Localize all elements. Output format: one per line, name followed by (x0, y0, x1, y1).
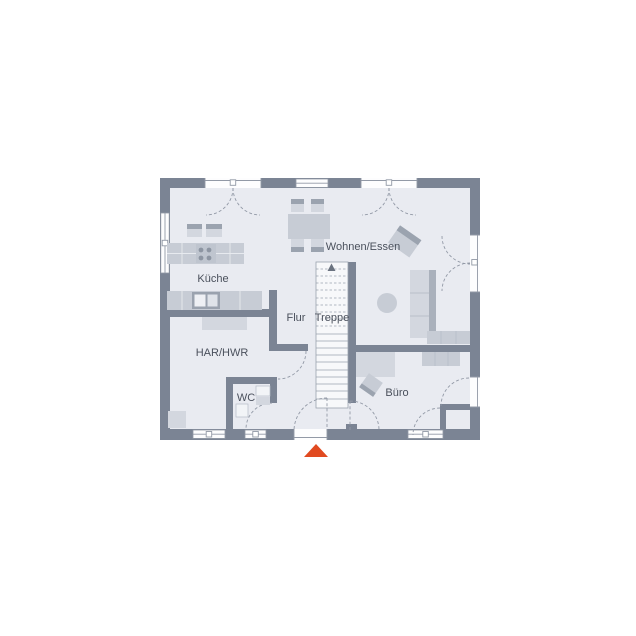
stairs (316, 262, 348, 408)
wall-kueche-har (160, 309, 269, 317)
window-marker (206, 432, 212, 438)
window-marker (253, 432, 258, 438)
desk (356, 352, 395, 377)
dining-table (288, 214, 330, 239)
entrance-door (294, 429, 327, 440)
floor-plan: Küche Wohnen/Essen Flur Treppe HAR/HWR W… (0, 0, 636, 636)
room-label-kueche: Küche (197, 273, 228, 285)
door-marker (472, 260, 478, 266)
wall-wc-left (226, 377, 233, 434)
kitchen-counter (167, 243, 244, 264)
wall-wohnen-buero (356, 345, 470, 352)
door-marker (386, 180, 392, 186)
room-label-har-hwr: HAR/HWR (196, 347, 249, 359)
utility-cabinet (168, 411, 186, 428)
room-label-treppe: Treppe (315, 312, 349, 324)
door-terrace-buero (470, 377, 480, 407)
wall-stairs (348, 262, 356, 403)
wall-flur-left (269, 290, 277, 351)
office-shelf (422, 352, 460, 366)
wall-wc-right (270, 377, 277, 403)
wall-flur-stub (277, 344, 308, 351)
door-marker (230, 180, 236, 186)
wc-sink (256, 386, 270, 405)
room-label-flur: Flur (287, 312, 306, 324)
floor-plan-page: Küche Wohnen/Essen Flur Treppe HAR/HWR W… (0, 0, 636, 636)
kitchen-counter-lower (167, 291, 262, 310)
wc-toilet (236, 404, 248, 417)
coffee-table (377, 293, 397, 313)
window-marker (162, 240, 168, 246)
cooktop (196, 244, 216, 263)
wall-wc-top (226, 377, 277, 384)
wall-corner-stub-v (440, 404, 446, 430)
sofa (410, 270, 436, 338)
window-marker (423, 432, 429, 438)
room-label-wohnen-essen: Wohnen/Essen (326, 241, 400, 253)
sideboard (427, 331, 470, 344)
wall-door-jamb (346, 424, 357, 430)
utility-appliance (202, 317, 247, 330)
room-label-buero: Büro (385, 387, 408, 399)
entrance-marker-icon (304, 444, 328, 457)
room-label-wc: WC (237, 392, 255, 404)
